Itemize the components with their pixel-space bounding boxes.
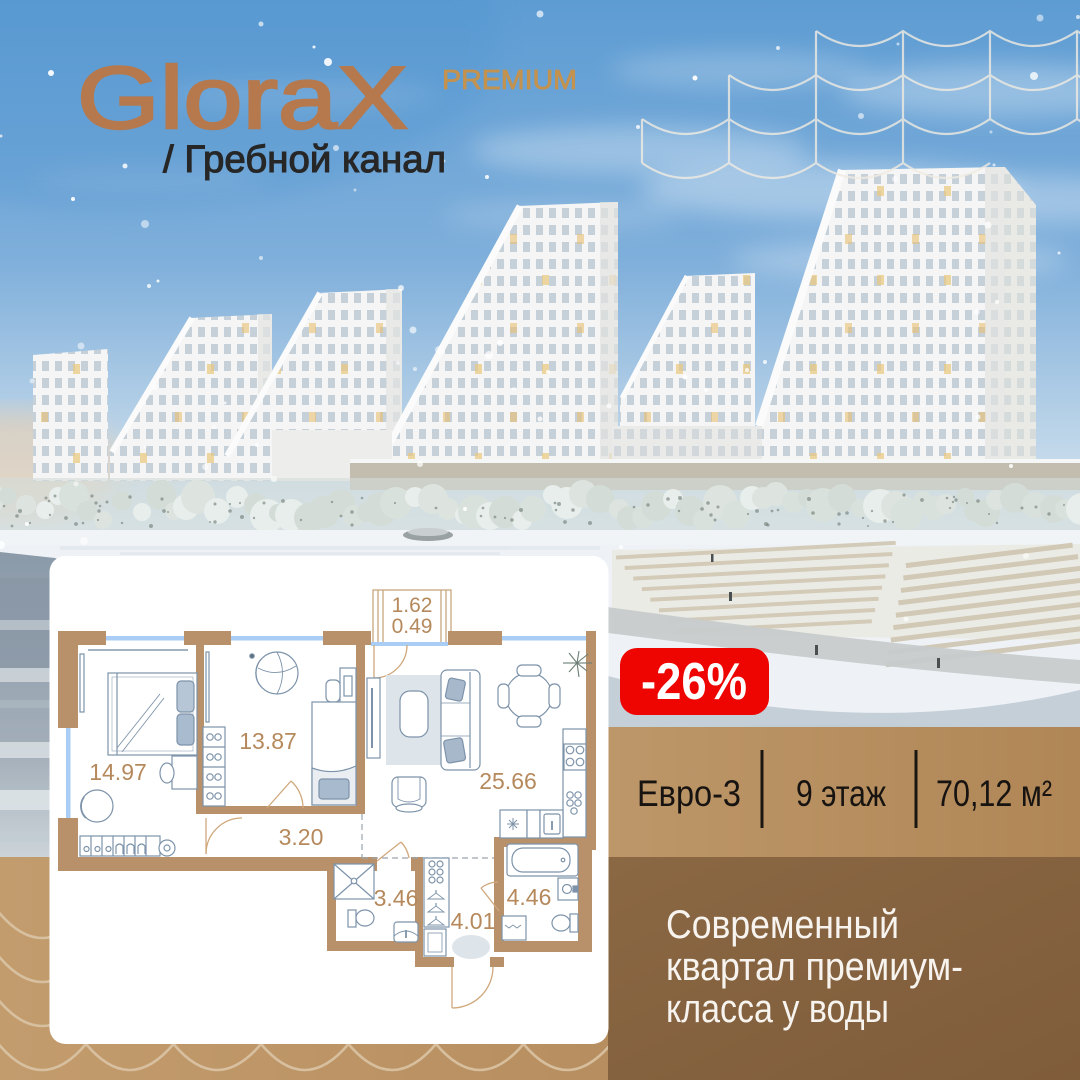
svg-text:14.97: 14.97 (89, 759, 147, 785)
svg-text:25.66: 25.66 (479, 768, 537, 794)
svg-text:4.46: 4.46 (507, 884, 552, 910)
svg-text:3.46: 3.46 (374, 885, 419, 911)
svg-text:квартал премиум-: квартал премиум- (666, 945, 963, 989)
svg-text:3.20: 3.20 (279, 824, 324, 850)
svg-text:70,12 м²: 70,12 м² (936, 773, 1052, 814)
svg-text:1.62: 1.62 (392, 594, 433, 617)
svg-text:GloraX: GloraX (77, 48, 408, 147)
svg-text:PREMIUM: PREMIUM (442, 64, 577, 95)
svg-text:13.87: 13.87 (239, 728, 297, 754)
svg-text:класса у воды: класса у воды (666, 987, 889, 1031)
svg-text:4.01: 4.01 (451, 908, 496, 934)
svg-text:Евро-3: Евро-3 (637, 773, 741, 814)
svg-text:9 этаж: 9 этаж (796, 773, 886, 814)
svg-text:-26%: -26% (641, 653, 747, 711)
svg-text:0.49: 0.49 (392, 615, 433, 638)
svg-text:Современный: Современный (666, 903, 899, 947)
svg-text:/ Гребной канал: / Гребной канал (163, 139, 446, 181)
